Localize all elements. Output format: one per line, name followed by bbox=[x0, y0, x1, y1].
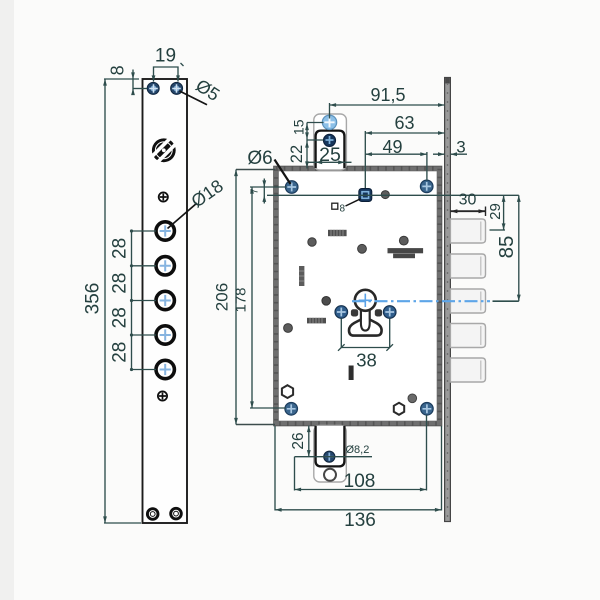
svg-text:28: 28 bbox=[110, 342, 131, 363]
svg-text:19: 19 bbox=[155, 46, 176, 67]
svg-text:8: 8 bbox=[107, 65, 127, 75]
svg-text:22: 22 bbox=[288, 145, 306, 163]
svg-text:63: 63 bbox=[394, 113, 414, 133]
svg-text:49: 49 bbox=[382, 137, 402, 157]
svg-text:30: 30 bbox=[459, 192, 477, 209]
svg-text:108: 108 bbox=[344, 471, 376, 492]
svg-text:206: 206 bbox=[212, 283, 231, 311]
svg-text:85: 85 bbox=[495, 236, 518, 259]
svg-text:178: 178 bbox=[232, 287, 249, 312]
svg-text:91,5: 91,5 bbox=[370, 85, 405, 105]
svg-text:38: 38 bbox=[356, 350, 377, 371]
svg-text:3: 3 bbox=[456, 138, 465, 157]
svg-text:26: 26 bbox=[290, 432, 307, 449]
svg-text:8: 8 bbox=[340, 204, 346, 215]
svg-text:25: 25 bbox=[319, 144, 341, 166]
svg-text:28: 28 bbox=[110, 238, 131, 259]
svg-text:29: 29 bbox=[487, 203, 504, 220]
svg-text:Ø6: Ø6 bbox=[247, 148, 272, 169]
svg-text:356: 356 bbox=[83, 283, 104, 315]
svg-text:136: 136 bbox=[344, 510, 376, 531]
svg-text:15: 15 bbox=[291, 119, 307, 135]
svg-text:28: 28 bbox=[110, 307, 131, 328]
svg-text:Ø8,2: Ø8,2 bbox=[346, 444, 370, 456]
svg-text:28: 28 bbox=[110, 273, 131, 294]
svg-text:7: 7 bbox=[250, 188, 261, 194]
